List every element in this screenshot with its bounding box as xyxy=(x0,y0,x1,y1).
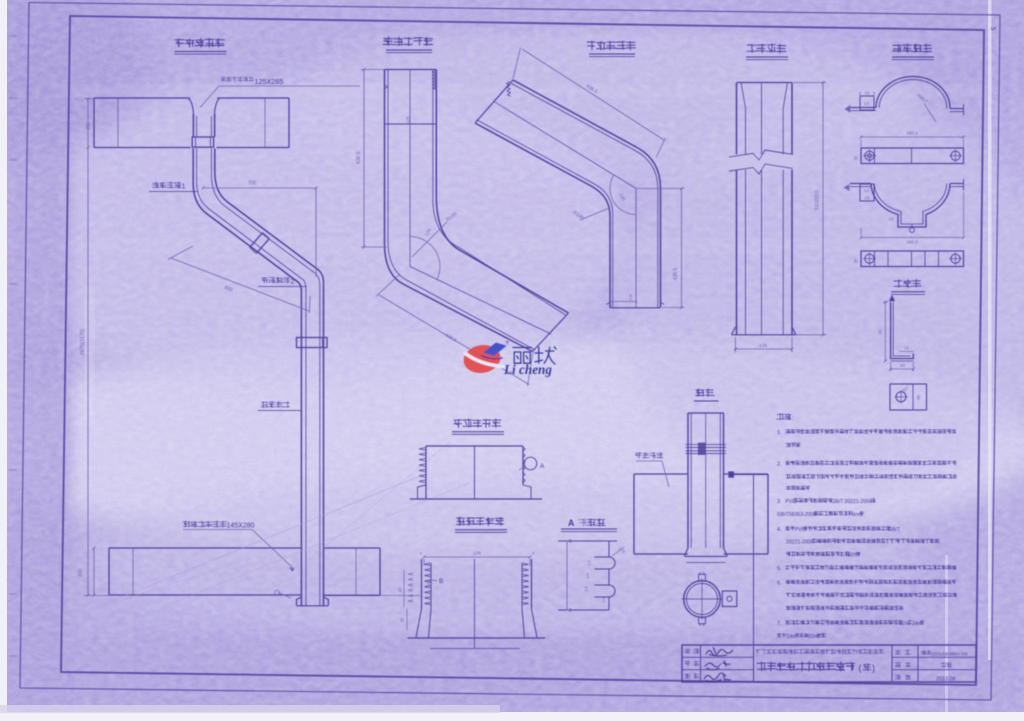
svg-text:): ) xyxy=(872,663,875,673)
svg-text:135: 135 xyxy=(473,551,481,557)
svg-text:20221-2006: 20221-2006 xyxy=(786,540,813,546)
svg-text:18: 18 xyxy=(904,346,909,351)
svg-text:438.5: 438.5 xyxy=(673,268,679,281)
svg-text:6.: 6. xyxy=(777,581,782,587)
svg-text:4.: 4. xyxy=(777,527,782,533)
svg-text:GB/T: GB/T xyxy=(888,527,900,533)
svg-text:Li cheng: Li cheng xyxy=(503,362,552,377)
svg-text:3.: 3. xyxy=(777,499,782,505)
svg-text:14: 14 xyxy=(864,188,869,193)
svg-text:GB/T58363-2006: GB/T58363-2006 xyxy=(777,512,816,518)
svg-text:3.5: 3.5 xyxy=(586,573,590,578)
svg-text:25: 25 xyxy=(865,91,870,96)
svg-text:25: 25 xyxy=(865,196,870,201)
svg-text:700: 700 xyxy=(248,181,257,187)
svg-text:300: 300 xyxy=(78,569,84,578)
svg-text:A: A xyxy=(568,518,575,528)
svg-text:2013.08: 2013.08 xyxy=(936,677,956,683)
svg-text:45: 45 xyxy=(398,587,403,592)
svg-text:180.2: 180.2 xyxy=(906,131,918,136)
svg-text:35: 35 xyxy=(878,329,883,334)
svg-text:14: 14 xyxy=(864,101,869,106)
svg-text:125: 125 xyxy=(406,116,411,124)
svg-text:2.5: 2.5 xyxy=(602,597,606,602)
svg-text:125X285: 125X285 xyxy=(255,77,284,86)
svg-text:125: 125 xyxy=(628,293,633,300)
svg-text:180.2: 180.2 xyxy=(906,240,918,245)
svg-text:125: 125 xyxy=(759,343,767,349)
svg-text:24m: 24m xyxy=(787,634,797,640)
svg-text:(2013)8388A-VII: (2013)8388A-VII xyxy=(932,652,968,658)
svg-text:24m: 24m xyxy=(912,621,922,627)
svg-text:145X280: 145X280 xyxy=(227,523,255,530)
svg-text:B: B xyxy=(439,578,443,585)
svg-text:40: 40 xyxy=(900,363,905,368)
svg-text:285: 285 xyxy=(86,122,92,131)
svg-text:30: 30 xyxy=(400,617,405,622)
svg-text:A: A xyxy=(540,463,545,470)
svg-text:30: 30 xyxy=(853,258,858,263)
svg-text:45: 45 xyxy=(916,395,921,400)
svg-text:2670(3170): 2670(3170) xyxy=(80,328,86,355)
svg-text:2: 2 xyxy=(291,279,295,286)
svg-text:3.5: 3.5 xyxy=(585,586,589,591)
svg-text::: : xyxy=(792,415,794,422)
svg-text:510(910): 510(910) xyxy=(815,190,821,210)
svg-text:5.: 5. xyxy=(777,566,782,572)
svg-text:PVC: PVC xyxy=(785,499,796,505)
svg-text:2.5: 2.5 xyxy=(588,560,592,565)
svg-text:1: 1 xyxy=(182,184,186,191)
svg-text:32m: 32m xyxy=(899,621,909,627)
svg-text:2.: 2. xyxy=(777,462,782,468)
svg-text:1.: 1. xyxy=(777,430,782,436)
svg-text:GB/T 20221-2006: GB/T 20221-2006 xyxy=(831,499,872,505)
svg-text:7.: 7. xyxy=(777,621,782,627)
svg-text:10: 10 xyxy=(889,217,894,222)
svg-text:438.5: 438.5 xyxy=(356,152,362,165)
svg-text:(: ( xyxy=(859,663,862,673)
svg-text:30: 30 xyxy=(853,155,858,160)
